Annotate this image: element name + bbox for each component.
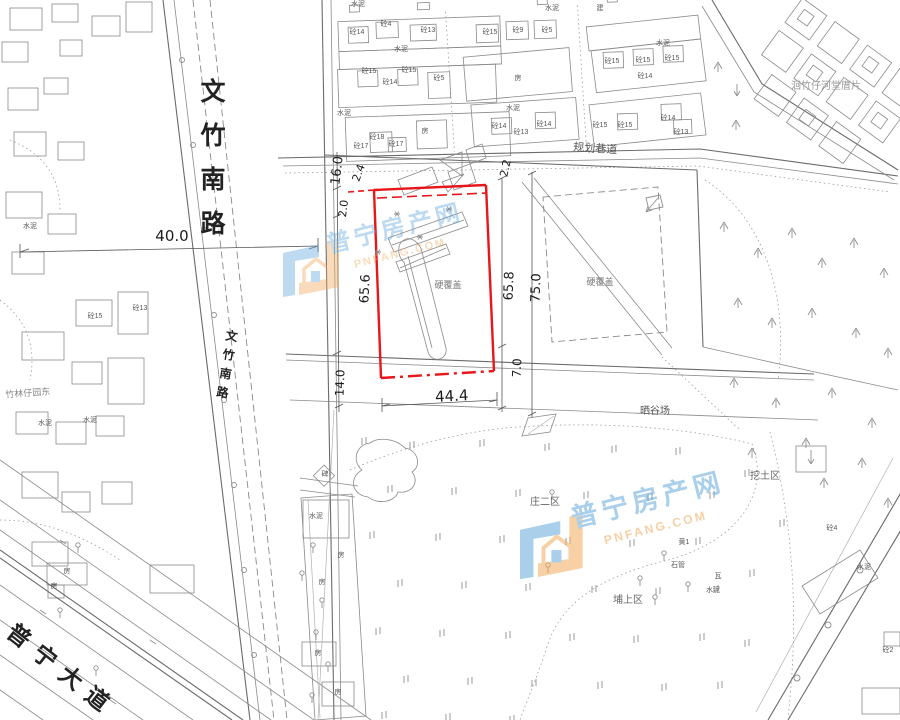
watermark-window — [311, 271, 320, 282]
tree-mark — [720, 222, 728, 232]
tree-mark — [828, 388, 836, 398]
paddy-mark — [500, 535, 504, 543]
watermark-window — [551, 550, 561, 562]
building-label: 砼5 — [542, 25, 553, 34]
paddy-mark — [468, 677, 472, 685]
dimension-label: 44.4 — [435, 386, 469, 406]
tree-mark — [850, 238, 858, 248]
area-label: 埔上区 — [613, 593, 643, 606]
tree-mark — [748, 448, 756, 458]
paddy-mark — [510, 715, 514, 720]
planned-road-label: 规划巷道 — [573, 139, 618, 156]
paddy-mark — [440, 629, 444, 637]
road-name-char: 宁 — [28, 639, 62, 674]
paddy-mark — [516, 489, 520, 497]
building-label: 砼17 — [389, 139, 404, 148]
paddy-mark — [376, 627, 380, 635]
paddy-mark — [388, 485, 392, 493]
tree-mark — [808, 308, 816, 318]
tree-mark — [868, 418, 876, 428]
building-label: 砼15 — [402, 65, 417, 74]
building-label: 水泥 — [656, 38, 670, 47]
building-label: 砼13 — [514, 127, 529, 136]
building-label: 砼13 — [421, 25, 436, 34]
survey-pin — [76, 543, 80, 553]
building-label: 砼18 — [370, 132, 385, 141]
dimension-label: 7.0 — [510, 358, 525, 378]
road-name: 文竹南路 — [215, 327, 240, 400]
tree-mark — [820, 478, 828, 488]
building-label: 水泥 — [38, 418, 52, 427]
area-label: 竹林仔园东 — [5, 385, 51, 399]
svg-text:路: 路 — [216, 384, 231, 401]
survey-pin — [662, 551, 666, 561]
survey-pin — [686, 582, 690, 592]
building-label: 黄1 — [679, 537, 690, 546]
dimension-label: 40.0 — [155, 227, 188, 245]
building-label: 砼2 — [883, 645, 894, 654]
area-label: 晒谷场 — [640, 404, 670, 417]
building-label: 水泥 — [506, 103, 520, 112]
building-label: 建 — [597, 3, 604, 12]
svg-text:南: 南 — [219, 365, 233, 382]
survey-pin — [311, 543, 315, 553]
survey-boundary-and-dimension-lines — [20, 152, 818, 420]
building-label: 瓦 — [715, 572, 722, 580]
road-name-char: 普 — [2, 618, 36, 653]
building-label: 砼9 — [513, 25, 524, 34]
paddy-mark — [370, 531, 374, 539]
tree-mark — [730, 378, 738, 388]
paddy-mark — [506, 631, 510, 639]
building-label: 碑 — [322, 469, 329, 478]
building-label: 水泥 — [706, 585, 720, 594]
building-label: 砼14 — [383, 77, 398, 86]
building-label: 水泥 — [337, 108, 351, 117]
neighbour-parcel — [522, 178, 740, 430]
survey-pin — [638, 576, 642, 586]
tree-mark — [884, 498, 892, 508]
tree-mark — [772, 398, 780, 408]
tree-mark — [768, 318, 776, 328]
paddy-mark — [436, 533, 440, 541]
paddy-mark — [592, 585, 596, 593]
village-boundary-lines — [278, 149, 898, 192]
paddy-mark — [570, 633, 574, 641]
building-labels: 砼14砼4砼13水泥砼15砼15砼14砼5水泥砼18砼17砼17房砼15砼9砼5… — [23, 0, 894, 696]
paddy-mark — [480, 439, 484, 447]
paddy-mark — [598, 681, 602, 689]
svg-text:路: 路 — [200, 210, 226, 238]
svg-text:文: 文 — [200, 77, 226, 106]
paddy-mark — [526, 583, 530, 591]
paddy-mark — [462, 581, 466, 589]
parcel-label: 硬覆盖 — [434, 279, 461, 290]
paddy-mark — [398, 579, 402, 587]
dimension-label: 65.8 — [502, 271, 518, 300]
watermark: 普宁房产网 PNFANG.COM — [520, 465, 727, 579]
building-label: 砼4 — [381, 19, 392, 28]
area-label: 洄竹仔河堂厝片 — [791, 79, 861, 92]
building-label: 砼14 — [661, 113, 676, 122]
svg-text:文: 文 — [225, 328, 240, 345]
tree-mark — [852, 328, 860, 338]
road-name: 文竹南路 — [199, 77, 226, 238]
paddy-mark — [382, 711, 386, 719]
building-label: 水泥 — [351, 0, 365, 8]
paddy-mark — [745, 639, 749, 647]
survey-map: 砼14砼4砼13水泥砼15砼15砼14砼5水泥砼18砼17砼17房砼15砼9砼5… — [0, 0, 900, 720]
parcel-label: 硬覆盖 — [586, 276, 613, 287]
building-label: 砼13 — [674, 127, 689, 136]
west-village-buildings — [0, 2, 194, 598]
paddy-mark — [662, 683, 666, 691]
building-label: 砼15 — [362, 66, 377, 75]
paddy-mark — [750, 569, 754, 577]
paddy-mark — [700, 633, 704, 641]
paddy-mark — [696, 537, 700, 545]
building-label: 水泥 — [83, 415, 97, 424]
paddy-mark — [634, 635, 638, 643]
tree-marks — [714, 62, 892, 508]
paddy-mark — [446, 713, 450, 720]
paddy-mark — [584, 491, 588, 499]
tree-mark — [818, 258, 826, 268]
area-label: 挖土区 — [750, 469, 780, 482]
survey-pin — [94, 666, 98, 676]
dimension-label: 16.0 — [328, 155, 346, 186]
dimension-label: 75.0 — [529, 273, 545, 302]
building-label: 水泥 — [545, 3, 559, 12]
building-label: 砼14 — [492, 121, 507, 130]
survey-pin — [326, 662, 330, 672]
paddy-mark — [612, 445, 616, 453]
paddy-mark — [780, 519, 784, 527]
tree-mark — [714, 62, 722, 72]
tree-mark — [884, 348, 892, 358]
paddy-mark — [718, 681, 722, 689]
svg-text:南: 南 — [200, 166, 225, 194]
building-label: 砼14 — [537, 119, 552, 128]
paddy-mark — [676, 447, 680, 455]
paddy-mark — [452, 487, 456, 495]
tree-mark — [732, 120, 740, 130]
svg-text:竹: 竹 — [221, 346, 236, 363]
road-name-char: 道 — [80, 681, 114, 716]
building-label: 房 — [315, 648, 322, 657]
building-label: 房 — [51, 581, 58, 590]
building-label: 水泥 — [23, 221, 37, 230]
building-label: 砼17 — [354, 141, 369, 150]
building-label: 砼15 — [665, 53, 680, 62]
building-label: 水泥 — [857, 562, 871, 571]
road-name-char: 大 — [54, 660, 88, 695]
building-label: 房 — [335, 687, 342, 696]
building-label: 房 — [319, 577, 326, 586]
building-label: 房 — [422, 126, 429, 135]
svg-text:竹: 竹 — [199, 122, 225, 150]
building-label: 砼15 — [483, 27, 498, 36]
paddy-mark — [745, 469, 749, 477]
tree-mark — [734, 298, 742, 308]
tree-mark — [858, 458, 866, 468]
dimension-label: 14.0 — [333, 369, 348, 396]
building-label: 砼15 — [593, 120, 608, 129]
building-label: 砼13 — [133, 303, 148, 312]
paddy-mark — [656, 587, 660, 595]
building-label: 水泥 — [309, 511, 323, 520]
building-label: 房 — [64, 566, 71, 575]
area-label: 庄二区 — [530, 495, 560, 508]
survey-pin — [314, 630, 318, 640]
building-label: 石管 — [671, 560, 685, 569]
building-label: 房 — [338, 550, 345, 559]
building-label: 砼14 — [350, 27, 365, 36]
building-label: 砼15 — [618, 120, 633, 129]
paddy-mark — [404, 675, 408, 683]
building-label: 水泥 — [394, 44, 408, 53]
dimension-label: 65.6 — [357, 274, 373, 304]
tree-mark — [788, 228, 796, 238]
survey-pin — [300, 571, 304, 581]
tree-mark — [802, 438, 810, 448]
dimension-label: 2.2 — [497, 158, 513, 178]
survey-pin — [58, 608, 62, 618]
dimension-label: 2.4 — [350, 162, 368, 183]
tree-mark — [754, 248, 762, 258]
east-area — [703, 84, 898, 472]
paddy-mark — [545, 443, 549, 451]
survey-pin — [653, 595, 657, 605]
building-label: 砼15 — [605, 56, 620, 65]
building-label: 砼4 — [827, 523, 838, 532]
building-label: 砼15 — [636, 55, 651, 64]
map-canvas[interactable]: 砼14砼4砼13水泥砼15砼15砼14砼5水泥砼18砼17砼17房砼15砼9砼5… — [0, 0, 900, 720]
building-label: 砼5 — [434, 73, 445, 82]
building-label: 砼14 — [638, 71, 653, 80]
building-label: 砼15 — [88, 311, 103, 320]
building-label: 房 — [515, 73, 522, 82]
tree-mark — [880, 268, 888, 278]
dimension-label: 2.0 — [336, 199, 351, 218]
